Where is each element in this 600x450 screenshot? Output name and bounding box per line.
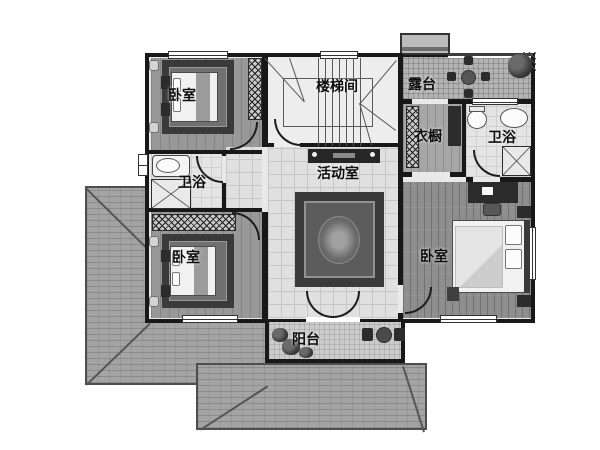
window xyxy=(440,315,497,323)
desk-chair xyxy=(483,203,501,216)
desk-paper xyxy=(482,187,493,195)
balcony-railing xyxy=(265,322,269,363)
bench xyxy=(447,287,459,301)
chimney xyxy=(400,33,450,55)
floor-plan: 卧室 楼梯间 露台 衣橱 卫浴 卫浴 活动室 卧室 卧室 阳台 xyxy=(0,0,600,450)
room-label-wardrobe: 衣橱 xyxy=(414,130,442,144)
closet-hatch xyxy=(152,214,236,231)
wall xyxy=(398,53,403,285)
window xyxy=(138,154,148,176)
patio-chair xyxy=(481,72,490,81)
nightstand xyxy=(161,103,170,116)
room-label-bedroom-bottom-left: 卧室 xyxy=(172,251,200,265)
patio-chair xyxy=(447,72,456,81)
room-label-balcony: 阳台 xyxy=(292,333,320,347)
toilet-tank xyxy=(469,106,485,112)
patio-table xyxy=(376,327,392,343)
wall xyxy=(403,99,412,104)
room-label-stairwell: 楼梯间 xyxy=(316,80,358,94)
desk xyxy=(468,182,518,203)
wall xyxy=(145,150,262,154)
tv-speaker xyxy=(312,152,317,157)
toilet xyxy=(467,110,487,129)
rug-medallion xyxy=(318,216,360,264)
cabinet xyxy=(448,106,461,146)
wall-lamp xyxy=(149,296,159,307)
nightstand xyxy=(161,285,170,297)
bed-blanket xyxy=(455,226,503,288)
bed-headboard xyxy=(524,220,530,293)
bathtub-basin xyxy=(156,158,180,173)
patio-chair xyxy=(464,89,473,98)
patio-table xyxy=(461,70,476,85)
wall xyxy=(268,143,274,147)
wall xyxy=(222,183,226,212)
pillow xyxy=(505,225,522,245)
patio-chair xyxy=(362,328,373,341)
shower xyxy=(502,146,531,176)
patio-chair xyxy=(394,328,405,341)
nightstand xyxy=(517,295,531,307)
wall xyxy=(448,99,472,104)
pillow xyxy=(505,249,522,269)
hallway xyxy=(226,147,262,212)
balcony-railing xyxy=(265,359,405,363)
closet-hatch xyxy=(248,58,262,120)
nightstand xyxy=(161,250,170,262)
wall-lamp xyxy=(149,60,159,71)
window xyxy=(472,98,518,105)
room-label-bathroom-right: 卫浴 xyxy=(488,131,516,145)
patio-chair xyxy=(464,56,473,65)
window xyxy=(168,51,228,59)
pillow xyxy=(172,272,180,286)
tv-speaker xyxy=(370,152,375,157)
chimney-cap xyxy=(402,47,448,51)
tv-screen xyxy=(333,153,355,158)
nightstand xyxy=(517,206,531,218)
wall xyxy=(462,104,466,177)
bed-blanket xyxy=(196,73,210,121)
wall xyxy=(262,53,268,147)
potted-plant xyxy=(299,347,313,358)
room-label-bathroom-left: 卫浴 xyxy=(178,176,206,190)
window xyxy=(182,315,238,323)
wall-lamp xyxy=(149,122,159,133)
wall xyxy=(450,172,462,177)
wall xyxy=(403,172,412,177)
room-label-bedroom-right: 卧室 xyxy=(420,250,448,264)
room-label-terrace: 露台 xyxy=(408,78,436,92)
room-label-activity: 活动室 xyxy=(317,167,359,181)
wall xyxy=(262,212,268,322)
roof-bottom xyxy=(196,363,427,430)
wall xyxy=(518,99,531,104)
sink xyxy=(500,108,528,128)
room-label-bedroom-top-left: 卧室 xyxy=(168,89,196,103)
wall-lamp xyxy=(149,236,159,247)
wall xyxy=(398,313,403,322)
